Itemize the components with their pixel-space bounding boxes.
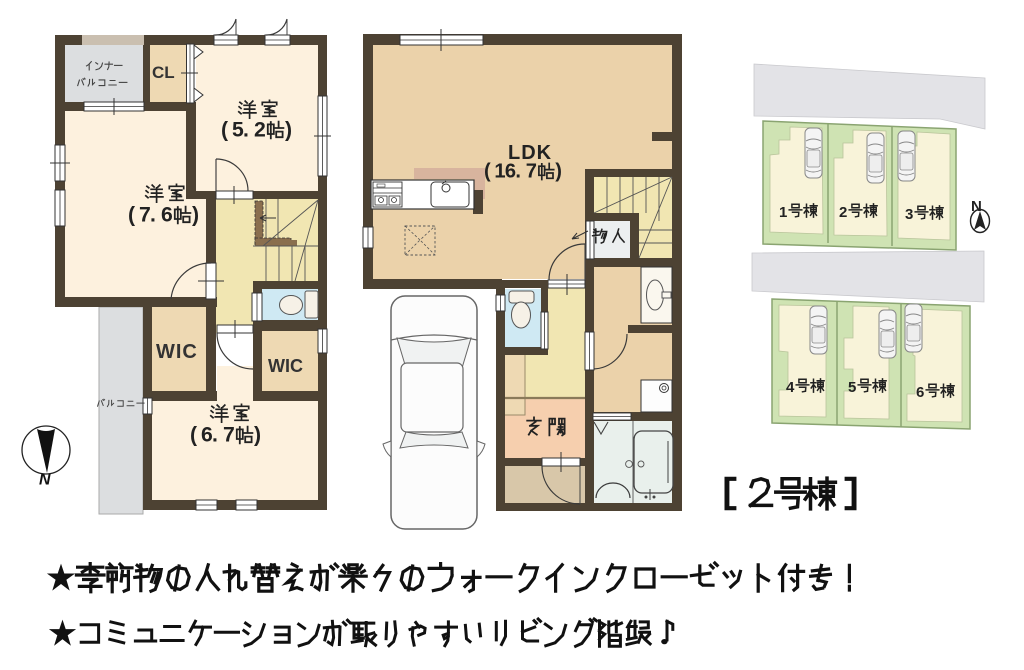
svg-text:(: ( (221, 118, 229, 141)
svg-text:): ) (555, 161, 562, 183)
svg-text:4: 4 (786, 379, 795, 396)
svg-text:): ) (254, 423, 261, 446)
svg-text:WIC: WIC (156, 341, 198, 363)
svg-text:(: ( (484, 161, 491, 183)
svg-text:WIC: WIC (268, 356, 303, 376)
svg-text:6: 6 (161, 203, 173, 226)
svg-text:1: 1 (779, 204, 787, 221)
svg-text:(: ( (128, 203, 136, 226)
svg-text:.: . (212, 423, 218, 446)
svg-text:N: N (39, 471, 51, 488)
svg-text:7: 7 (223, 423, 235, 446)
svg-text:2: 2 (839, 204, 847, 221)
svg-text:.: . (243, 118, 249, 141)
svg-text:2: 2 (254, 118, 266, 141)
svg-text:7: 7 (526, 161, 537, 183)
svg-text:): ) (192, 203, 199, 226)
svg-text:6: 6 (916, 384, 924, 401)
svg-text:.: . (150, 203, 156, 226)
svg-text:3: 3 (905, 206, 913, 223)
svg-text:.: . (515, 161, 521, 183)
svg-text:5: 5 (848, 379, 856, 396)
svg-text:(: ( (190, 423, 198, 446)
svg-text:): ) (285, 118, 292, 141)
svg-text:CL: CL (152, 63, 175, 82)
